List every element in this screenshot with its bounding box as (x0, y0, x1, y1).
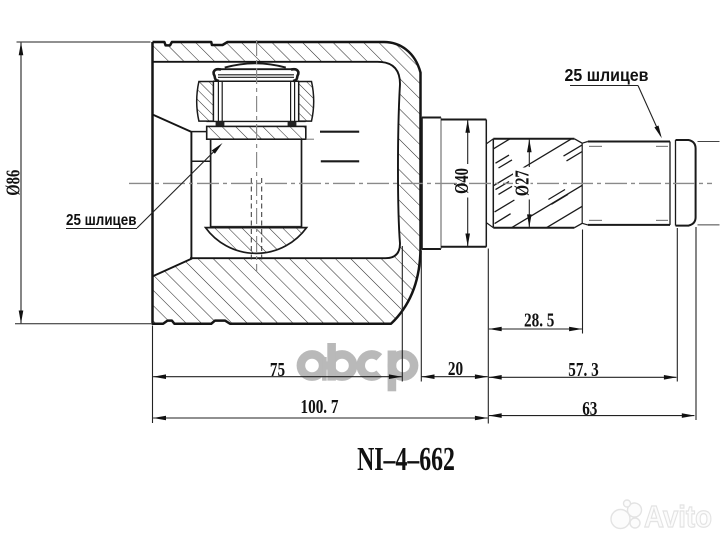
svg-text:63: 63 (582, 397, 597, 419)
svg-text:75: 75 (270, 358, 285, 380)
svg-text:25 шлицев: 25 шлицев (565, 65, 649, 85)
svg-text:Avito: Avito (644, 499, 712, 534)
svg-text:NI–4–662: NI–4–662 (357, 441, 455, 478)
svg-text:20: 20 (448, 357, 463, 379)
svg-text:57. 3: 57. 3 (568, 358, 599, 380)
svg-text:100. 7: 100. 7 (301, 395, 339, 417)
svg-text:Ø40: Ø40 (451, 168, 472, 194)
svg-text:25 шлицев: 25 шлицев (66, 212, 137, 229)
svg-text:28. 5: 28. 5 (524, 309, 555, 331)
svg-text:Ø86: Ø86 (3, 169, 24, 195)
svg-text:Ø27: Ø27 (511, 170, 532, 196)
